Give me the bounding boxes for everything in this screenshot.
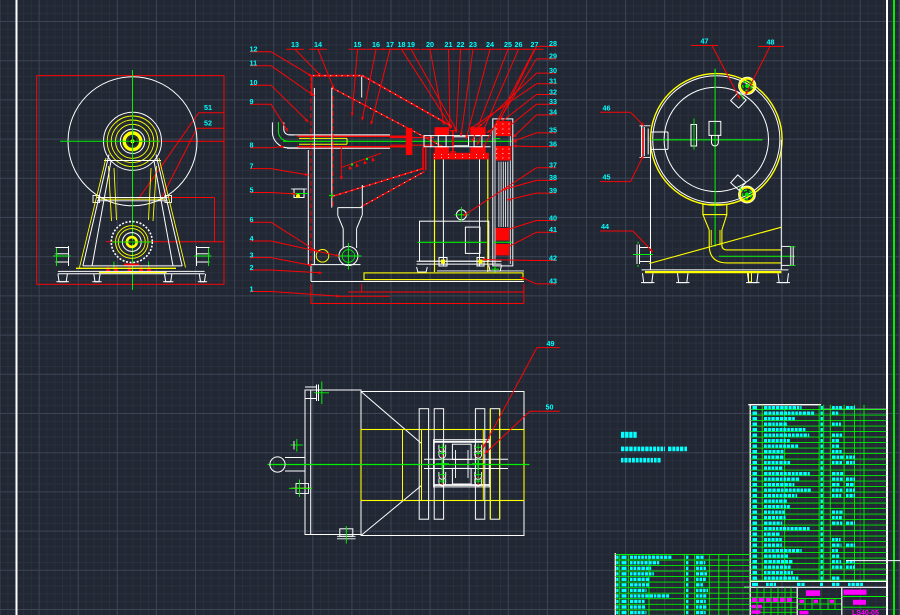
svg-text:13: 13: [291, 40, 299, 49]
svg-text:48: 48: [767, 38, 775, 47]
svg-text:38: 38: [549, 173, 557, 182]
svg-text:16: 16: [372, 40, 380, 49]
svg-text:9: 9: [250, 97, 254, 106]
svg-text:28: 28: [549, 39, 557, 48]
svg-text:41: 41: [549, 225, 557, 234]
svg-text:46: 46: [603, 103, 611, 112]
svg-text:2: 2: [250, 263, 254, 272]
svg-text:39: 39: [549, 186, 557, 195]
svg-text:37: 37: [549, 161, 557, 170]
svg-text:30: 30: [549, 66, 557, 75]
svg-text:33: 33: [549, 97, 557, 106]
svg-text:31: 31: [549, 77, 557, 86]
svg-text:20: 20: [426, 40, 434, 49]
svg-text:42: 42: [549, 253, 557, 262]
svg-text:19: 19: [407, 40, 415, 49]
svg-text:26: 26: [515, 40, 523, 49]
svg-text:LS40-05: LS40-05: [852, 610, 879, 615]
svg-text:25: 25: [504, 40, 512, 49]
svg-text:35: 35: [549, 126, 557, 135]
svg-text:36: 36: [549, 139, 557, 148]
svg-text:29: 29: [549, 52, 557, 61]
svg-text:1: 1: [250, 284, 254, 293]
svg-text:40: 40: [549, 213, 557, 222]
svg-text:32: 32: [549, 87, 557, 96]
svg-text:3: 3: [250, 250, 254, 259]
svg-text:44: 44: [601, 222, 609, 231]
svg-text:14: 14: [314, 40, 322, 49]
svg-text:8: 8: [250, 141, 254, 150]
svg-text:43: 43: [549, 277, 557, 286]
svg-text:21: 21: [445, 40, 453, 49]
svg-text:5: 5: [250, 185, 254, 194]
svg-text:49: 49: [547, 339, 555, 348]
svg-text:6: 6: [250, 215, 254, 224]
svg-text:23: 23: [469, 40, 477, 49]
svg-text:45: 45: [603, 173, 611, 182]
svg-text:17: 17: [386, 40, 394, 49]
svg-text:34: 34: [549, 108, 557, 117]
svg-text:10: 10: [250, 78, 258, 87]
svg-text:50: 50: [546, 403, 554, 412]
svg-text:52: 52: [204, 119, 212, 128]
svg-text:7: 7: [250, 161, 254, 170]
svg-text:11: 11: [250, 59, 258, 68]
svg-text:51: 51: [204, 103, 212, 112]
svg-text:18: 18: [398, 40, 406, 49]
svg-text:12: 12: [250, 45, 258, 54]
svg-text:47: 47: [701, 37, 709, 46]
svg-text:24: 24: [486, 40, 494, 49]
svg-text:22: 22: [457, 40, 465, 49]
svg-text:15: 15: [354, 40, 362, 49]
svg-text:27: 27: [531, 40, 539, 49]
svg-text:4: 4: [250, 234, 254, 243]
